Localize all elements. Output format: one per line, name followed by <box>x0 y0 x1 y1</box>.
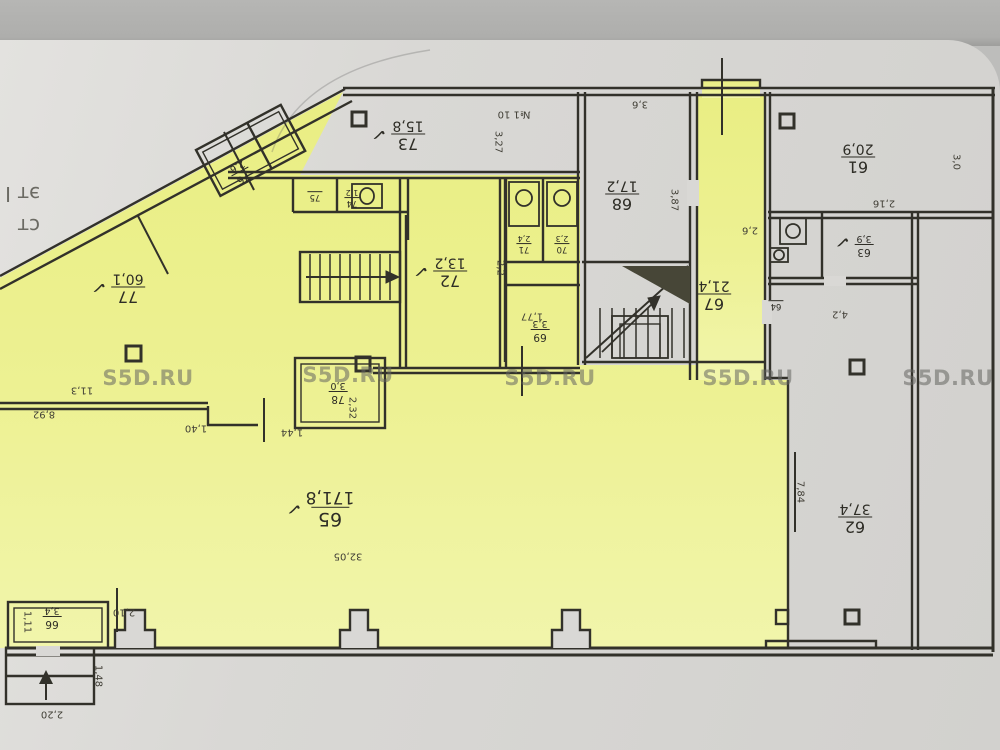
room-number: 62 <box>838 517 872 536</box>
room-label-64: 64 <box>769 300 784 310</box>
room-number: 61 <box>841 157 875 176</box>
room-label-62: 62 37,4 <box>838 501 872 536</box>
room-number: 71 <box>517 243 532 253</box>
room-number: 77 <box>111 287 145 306</box>
room-number: 69 <box>530 329 549 342</box>
dimension-label: 1,44 <box>281 427 303 438</box>
room-area: 13,2 <box>434 255 465 271</box>
room-area: 2,4 <box>518 233 531 243</box>
room-number: 75 <box>308 191 323 201</box>
dimension-label: 32,05 <box>334 551 363 562</box>
watermark: S5D.RU <box>902 366 993 390</box>
room-label-69: 69 3,3 <box>530 318 549 342</box>
dimension-label: 7,84 <box>795 481 806 503</box>
room-area: 3,9 <box>856 233 871 244</box>
dimension-label: 4,2 <box>832 309 848 320</box>
room-area: 60,1 <box>112 271 143 287</box>
room-number: 64 <box>769 300 784 310</box>
plan-paper: 73 15,8 ✓ 68 17,2 61 20,9 63 3,9 ✓ 64 67… <box>0 40 1000 750</box>
dimension-label: 2,20 <box>41 709 63 720</box>
dimension-label: 3,27 <box>493 131 504 153</box>
dimension-label: 1,11 <box>22 611 33 633</box>
dimension-label: 1,40 <box>185 423 207 434</box>
dimension-label: 3,87 <box>669 189 680 211</box>
dimension-label: 11,3 <box>71 385 93 396</box>
room-area: 15,8 <box>392 118 423 134</box>
room-label-72: 72 13,2 ✓ <box>433 255 467 290</box>
room-label-70: 70 2,3 <box>555 233 570 253</box>
room-number: 67 <box>697 294 731 313</box>
dimension-label: 2,2 <box>495 260 506 276</box>
check-mark: ✓ <box>90 279 108 296</box>
dimension-label: 3,0 <box>951 154 962 170</box>
room-label-68: 68 17,2 <box>605 178 639 213</box>
room-number: 68 <box>605 194 639 213</box>
room-label-66: 66 3,4 <box>42 605 61 629</box>
watermark: S5D.RU <box>102 366 193 390</box>
room-label-77: 77 60,1 ✓ <box>111 271 145 306</box>
room-area: 2,3 <box>556 233 569 243</box>
room-number: 63 <box>854 244 873 257</box>
dimension-label: 2,6 <box>742 225 758 236</box>
watermark: S5D.RU <box>504 366 595 390</box>
room-number: 65 <box>311 507 349 529</box>
room-number: 74 <box>345 197 360 207</box>
dimension-label: 2,10 <box>113 607 135 618</box>
room-area: 171,8 <box>306 487 355 507</box>
room-label-75: 75 <box>308 191 323 201</box>
watermark: S5D.RU <box>702 366 793 390</box>
dimension-label: 8,92 <box>33 409 55 420</box>
edge-handwriting-line: ст <box>0 210 40 242</box>
stairs-right <box>586 266 690 358</box>
dimension-label: 3,6 <box>632 99 648 110</box>
entrance-arrow <box>39 670 53 700</box>
room-label-74: 74 1,2 <box>345 187 360 207</box>
edge-handwriting: ст эт I <box>0 178 40 242</box>
check-mark: ✓ <box>285 500 303 517</box>
dimension-label: 2,16 <box>873 198 895 209</box>
room-label-73: 73 15,8 ✓ <box>391 118 425 153</box>
room-label-61: 61 20,9 <box>841 141 875 176</box>
room-area: 3,4 <box>44 605 59 616</box>
room-label-67: 67 21,4 <box>697 278 731 313</box>
room-label-63: 63 3,9 ✓ <box>854 233 873 257</box>
floorplan-photo: 73 15,8 ✓ 68 17,2 61 20,9 63 3,9 ✓ 64 67… <box>0 0 1000 750</box>
room-number: 72 <box>433 271 467 290</box>
check-mark: ✓ <box>370 126 388 143</box>
room-area: 37,4 <box>839 501 870 517</box>
toilet-icon <box>770 248 788 262</box>
edge-handwriting-line: эт I <box>0 178 40 210</box>
dimension-label: 1,77 <box>521 311 543 322</box>
room-number: 73 <box>391 134 425 153</box>
room-number: 78 <box>328 391 347 404</box>
check-mark: ✓ <box>412 263 430 280</box>
watermark: S5D.RU <box>302 363 393 387</box>
dimension-label: 2,32 <box>347 397 358 419</box>
room-number: 70 <box>555 243 570 253</box>
room-area: 21,4 <box>698 278 729 294</box>
room-area: 20,9 <box>842 141 873 157</box>
room-area: 1,2 <box>346 187 359 197</box>
highlighted-area <box>0 80 788 648</box>
check-mark: ✓ <box>834 233 852 250</box>
dimension-label: №1 10 <box>498 109 531 120</box>
room-number: 66 <box>42 616 61 629</box>
sink-icon <box>780 218 806 244</box>
room-area: 17,2 <box>606 178 637 194</box>
room-label-71: 71 2,4 <box>517 233 532 253</box>
room-label-65: 65 171,8 ✓ <box>306 487 355 529</box>
dimension-label: 1,48 <box>93 665 104 687</box>
